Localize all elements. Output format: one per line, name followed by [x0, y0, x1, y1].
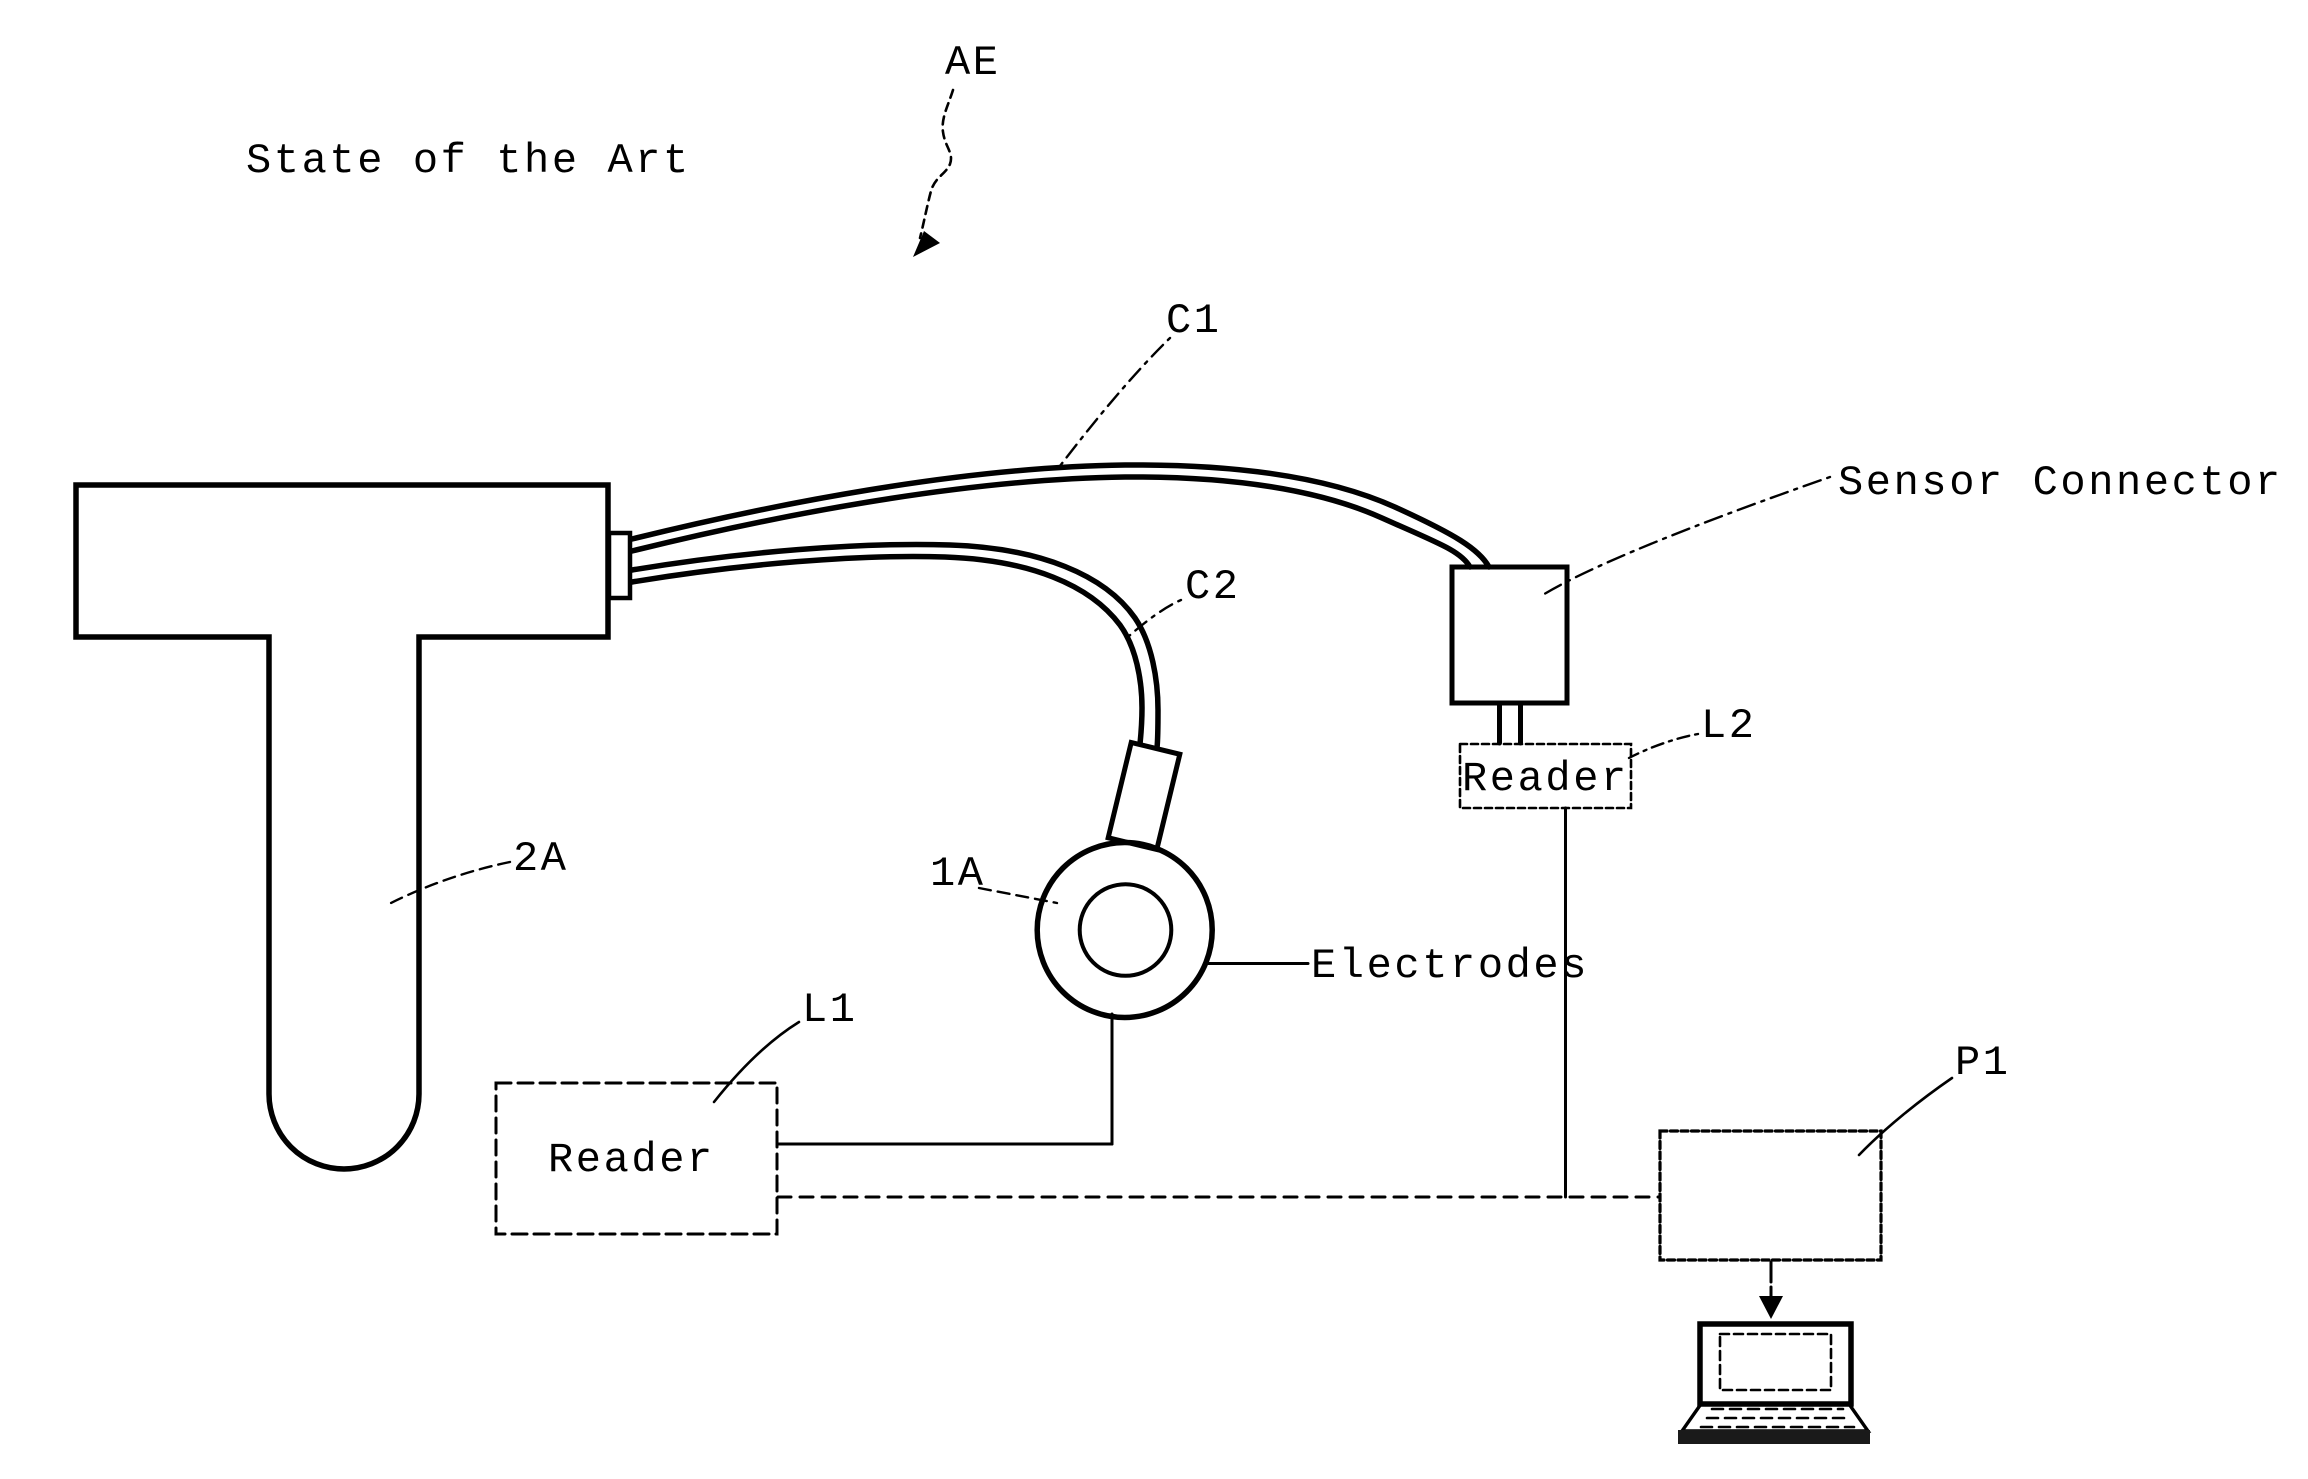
- svg-text:C2: C2: [1185, 563, 1241, 611]
- svg-text:2A: 2A: [513, 835, 569, 883]
- svg-text:Electrodes: Electrodes: [1311, 942, 1589, 990]
- svg-text:AE: AE: [945, 39, 1001, 87]
- svg-text:L2: L2: [1701, 702, 1757, 750]
- svg-text:C1: C1: [1166, 297, 1222, 345]
- svg-text:1A: 1A: [930, 850, 986, 898]
- svg-text:Reader: Reader: [1462, 755, 1629, 803]
- svg-text:P1: P1: [1955, 1039, 2011, 1087]
- svg-text:Sensor Connector: Sensor Connector: [1838, 459, 2283, 507]
- svg-text:L1: L1: [802, 986, 858, 1034]
- svg-text:State of the Art: State of the Art: [246, 137, 691, 185]
- svg-text:Reader: Reader: [548, 1136, 715, 1184]
